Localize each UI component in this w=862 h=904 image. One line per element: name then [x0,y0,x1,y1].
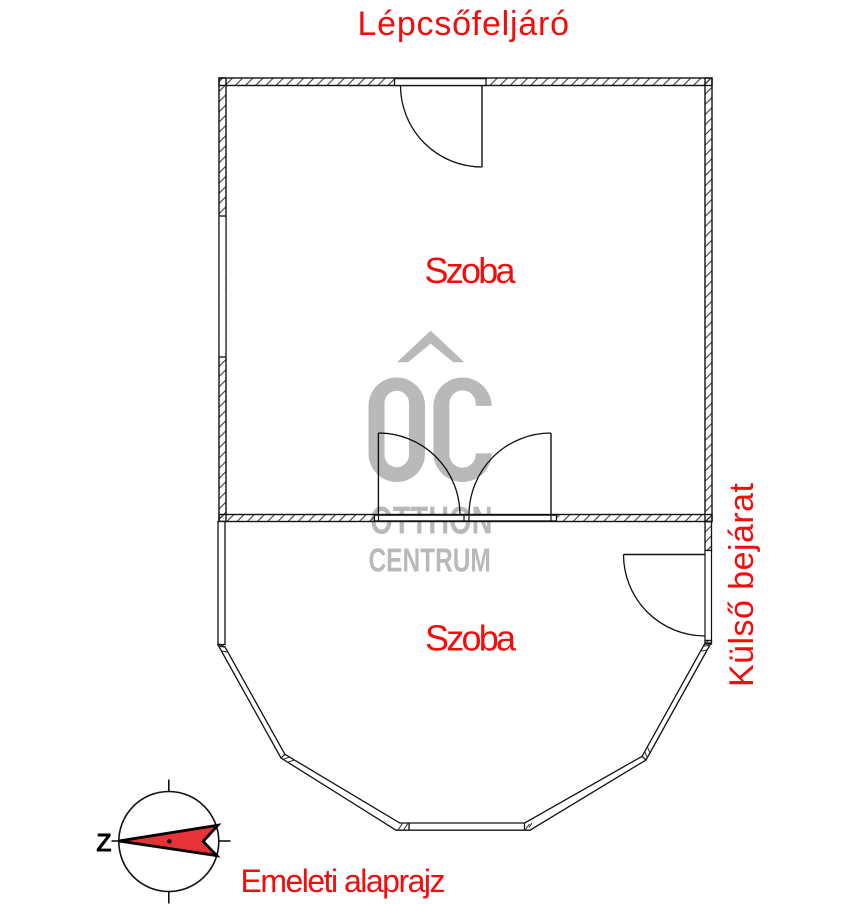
svg-text:Szoba: Szoba [425,618,517,659]
svg-text:Lépcsőfeljáró: Lépcsőfeljáró [358,5,570,43]
svg-text:Külső bejárat: Külső bejárat [723,482,761,687]
svg-text:Emeleti alaprajz: Emeleti alaprajz [241,863,446,899]
svg-text:CENTRUM: CENTRUM [369,542,491,579]
svg-text:Z: Z [96,828,112,858]
svg-text:Szoba: Szoba [425,250,517,291]
